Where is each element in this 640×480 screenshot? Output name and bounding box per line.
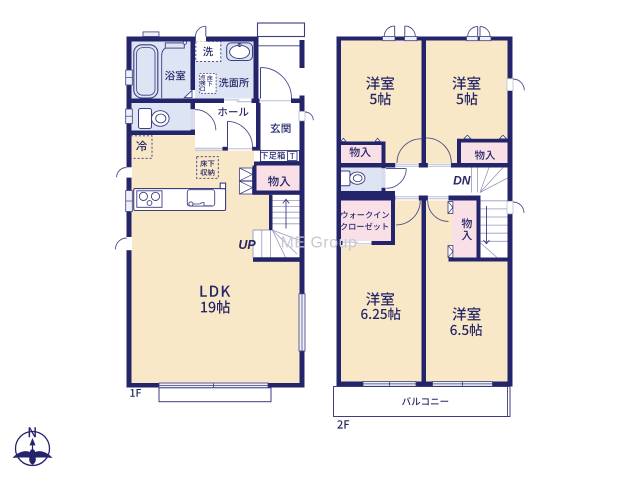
svg-text:UP: UP	[238, 238, 256, 252]
svg-text:DN: DN	[453, 173, 471, 187]
svg-text:ME Group: ME Group	[281, 235, 358, 252]
